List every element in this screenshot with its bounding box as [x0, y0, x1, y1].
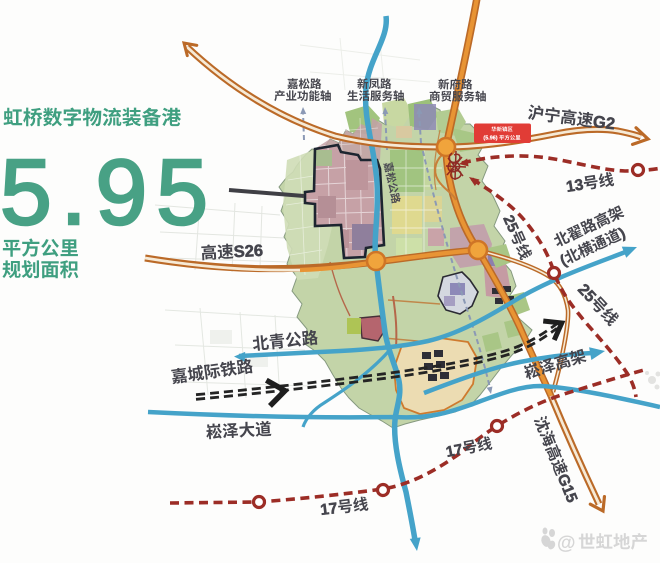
svg-text:@: @ — [557, 533, 576, 554]
svg-text:17: 17 — [445, 441, 465, 461]
svg-text:5.95: 5.95 — [0, 140, 217, 244]
svg-text:17: 17 — [319, 500, 338, 519]
svg-text:(5.96): (5.96) — [483, 136, 497, 142]
svg-text:G2: G2 — [592, 113, 616, 134]
svg-text:S26: S26 — [233, 242, 263, 262]
svg-text:13: 13 — [565, 176, 585, 196]
